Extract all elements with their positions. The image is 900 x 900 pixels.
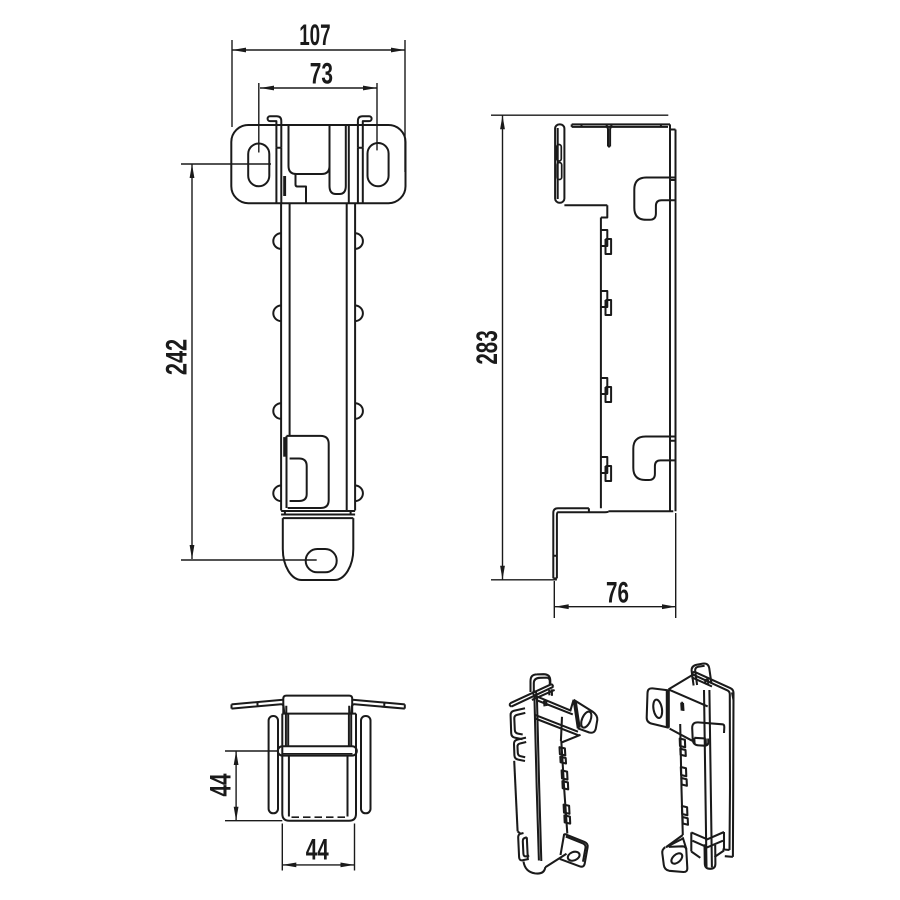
- svg-text:242: 242: [162, 339, 194, 375]
- svg-text:107: 107: [299, 20, 330, 52]
- svg-text:44: 44: [205, 774, 237, 797]
- svg-text:44: 44: [306, 834, 329, 866]
- svg-text:76: 76: [606, 577, 629, 609]
- svg-text:283: 283: [472, 330, 504, 364]
- svg-text:73: 73: [310, 58, 333, 90]
